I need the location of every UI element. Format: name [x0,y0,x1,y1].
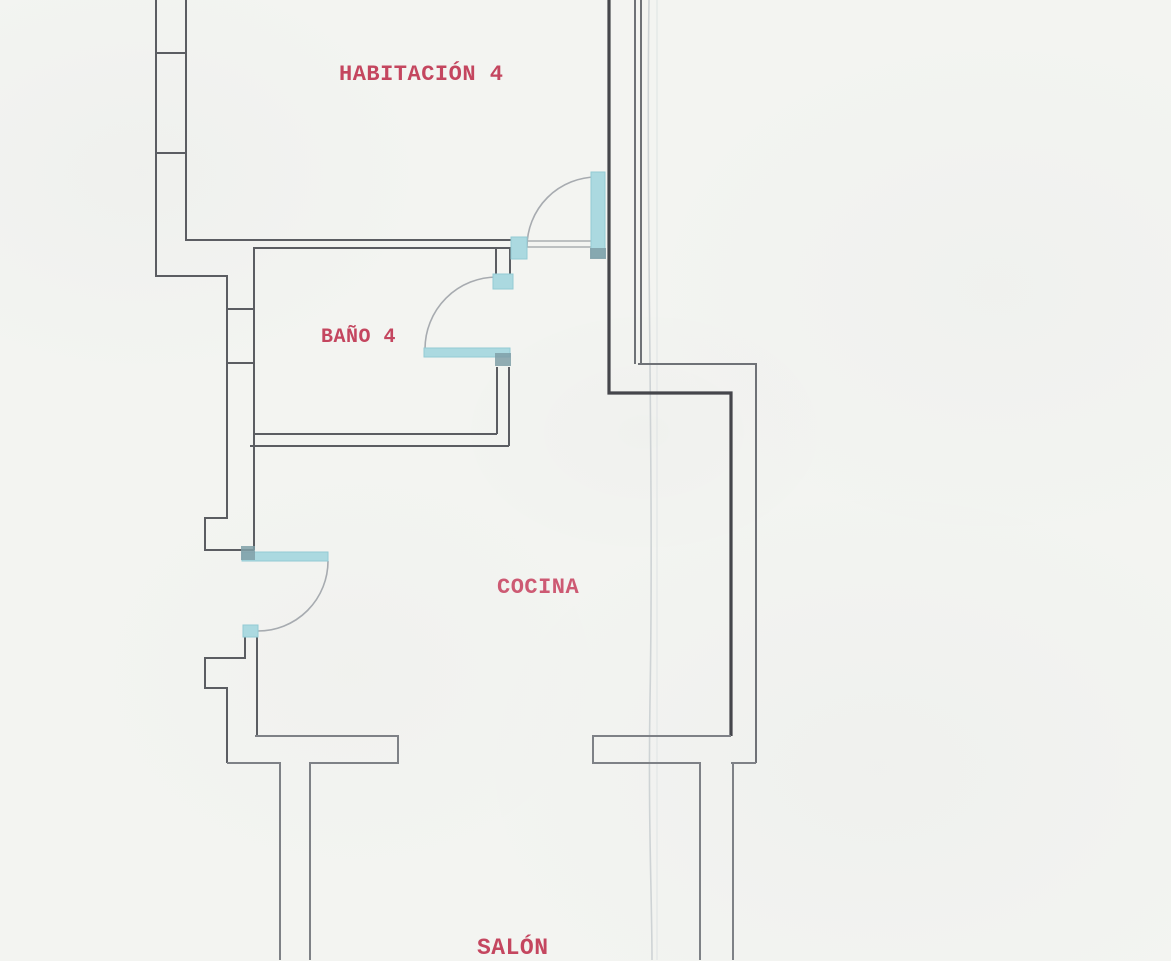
door-swing-arc [425,277,497,349]
door-jamb [493,274,513,289]
room-label-cocina: COCINA [497,577,579,599]
wall-right-return [638,364,756,763]
door-leaf [591,172,605,258]
walls-lower-salon [227,736,756,960]
door-swing-arc [258,561,328,631]
door-swing-arc [527,177,597,247]
wall-bedroom-bottom-inner [254,248,514,550]
wall-left-outer [156,0,254,550]
door-jamb [243,625,258,637]
door-bano4 [424,274,513,366]
wall-left-band [255,736,398,960]
walls-bedroom-bathroom [156,0,516,763]
walls-right-side [609,0,756,763]
room-label-salon: SALÓN [477,937,549,960]
wall-kitchen-left-notch [205,637,245,763]
fold-crease-lines [648,0,658,960]
door-hinge [241,546,255,560]
door-hinge [495,353,511,366]
wall-left-inner-and-bedroom-bottom [186,0,516,240]
door-hinge [590,248,606,259]
wall-kitchen-right-thick [609,0,731,736]
room-label-bano-4: BAÑO 4 [321,328,396,348]
floorplan-drawing [0,0,1171,960]
room-label-habitacion-4: HABITACIÓN 4 [339,64,503,86]
door-habitacion4 [511,172,606,259]
wall-right-band [593,736,731,960]
wall-left-column-outer [227,763,280,960]
door-jamb [511,237,527,259]
door-cocina [241,546,328,637]
